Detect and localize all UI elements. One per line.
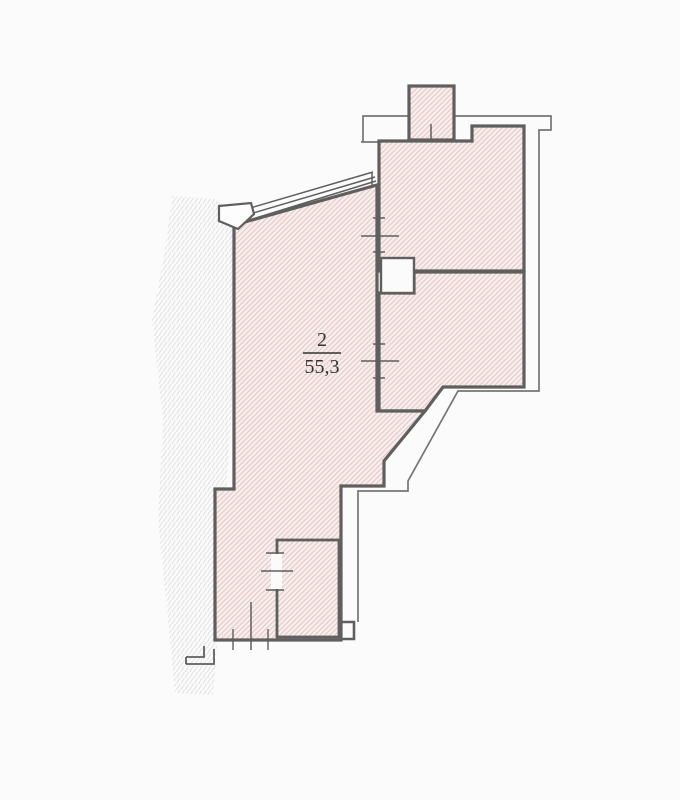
floor-plan-svg: 2 55,3 (0, 0, 680, 800)
wall-notch (381, 258, 414, 293)
unit-number: 2 (317, 329, 327, 351)
room-upper-right (379, 126, 524, 271)
floor-plan-page: 2 55,3 (0, 0, 680, 800)
bathroom (277, 540, 339, 637)
unit-area: 55,3 (305, 356, 340, 378)
